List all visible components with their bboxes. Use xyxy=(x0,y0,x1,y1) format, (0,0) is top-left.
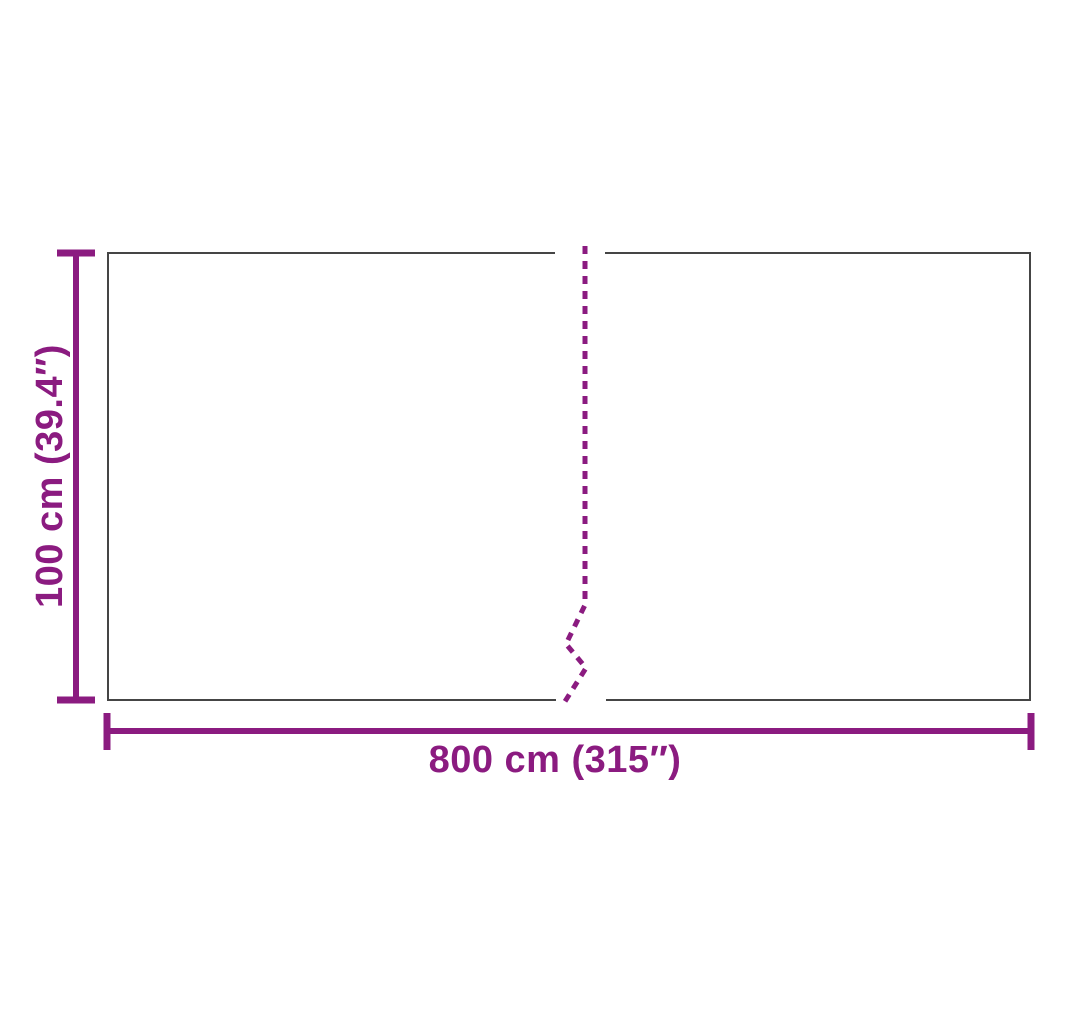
diagram-drawing xyxy=(0,0,1069,1024)
height-dimension-label: 100 cm (39.4″) xyxy=(30,344,70,608)
product-dimension-diagram: 100 cm (39.4″) 800 cm (315″) xyxy=(0,0,1069,1024)
break-line-dashed xyxy=(564,246,586,703)
panel-outline-left-half xyxy=(108,253,556,700)
width-dimension-label: 800 cm (315″) xyxy=(429,740,682,780)
panel-outline-right-half xyxy=(605,253,1030,700)
